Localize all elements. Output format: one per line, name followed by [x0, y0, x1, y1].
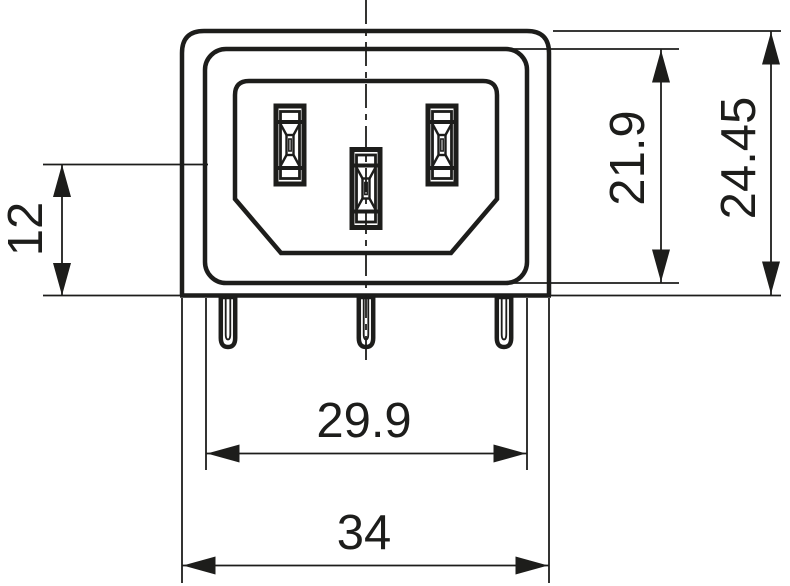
arrowhead-up [762, 32, 780, 65]
left-contact [276, 106, 304, 184]
dimension-label-21-9: 21.9 [601, 110, 655, 205]
arrowhead-left [207, 445, 240, 463]
right-solder-pin [497, 297, 511, 347]
arrowhead-down [53, 263, 71, 296]
socket-contacts [276, 106, 456, 228]
dimension-12: 12 [0, 165, 208, 296]
dimension-label-24-45: 24.45 [712, 97, 766, 220]
dimension-label-12: 12 [0, 202, 53, 257]
arrowhead-down [652, 250, 670, 283]
dimension-label-29-9: 29.9 [316, 394, 411, 448]
connector-body [43, 31, 781, 296]
arrowhead-up [53, 165, 71, 198]
arrowhead-down [762, 262, 780, 295]
arrowhead-left [183, 557, 216, 575]
arrowhead-right [494, 445, 527, 463]
left-solder-pin [221, 297, 235, 347]
arrowhead-up [652, 50, 670, 83]
connector-dimension-drawing: 12 21.9 24.45 29.9 34 [0, 0, 790, 586]
dimension-label-34: 34 [337, 506, 392, 560]
technical-drawing-page: 12 21.9 24.45 29.9 34 [0, 0, 790, 586]
arrowhead-right [516, 557, 549, 575]
right-contact [428, 106, 456, 184]
